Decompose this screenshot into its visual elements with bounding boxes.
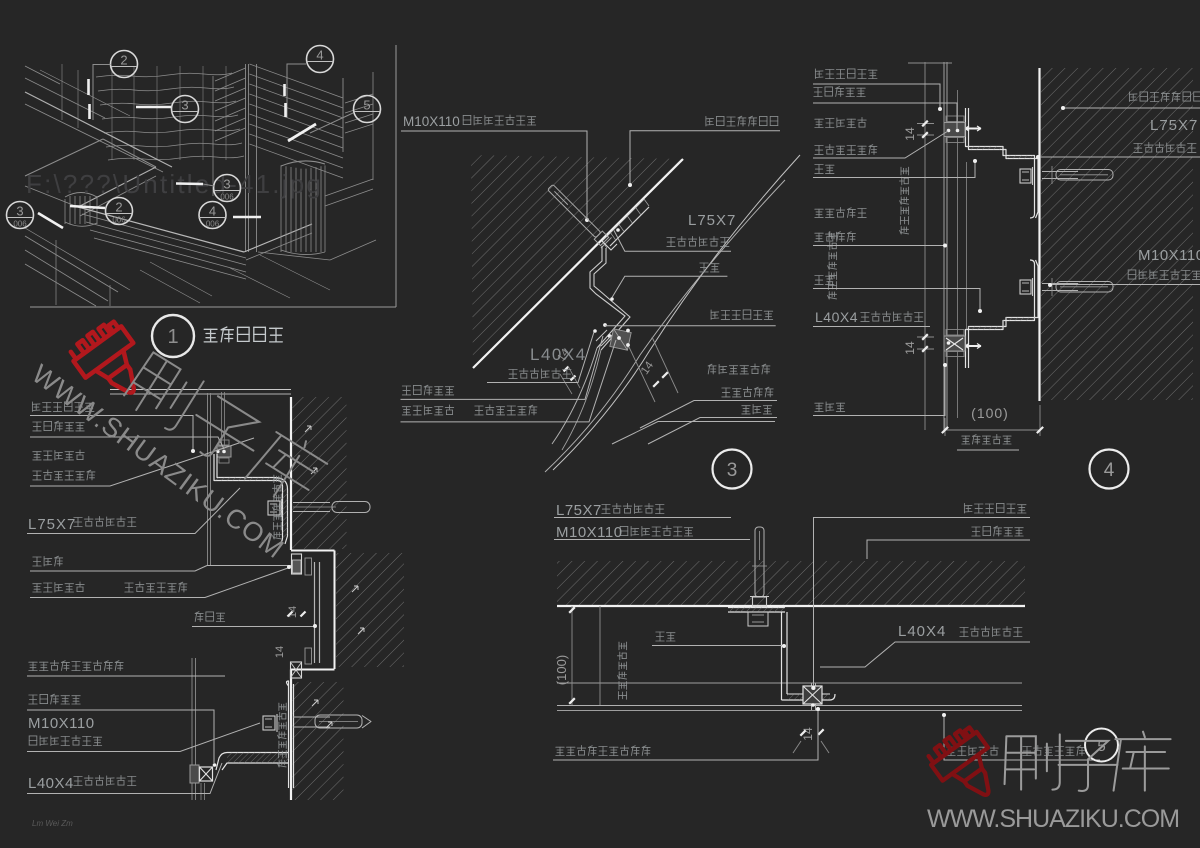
svg-text:006: 006 (13, 220, 27, 229)
svg-text:WWW.SHUAZIKU.COM: WWW.SHUAZIKU.COM (927, 805, 1179, 833)
svg-text:F:\???\Untitled-41.jpg: F:\???\Untitled-41.jpg (26, 169, 323, 199)
svg-text:4: 4 (316, 48, 323, 63)
svg-text:006: 006 (112, 216, 126, 225)
svg-text:L75X7: L75X7 (1150, 117, 1198, 134)
svg-text:M10X110: M10X110 (556, 524, 623, 541)
svg-text:14: 14 (274, 646, 286, 658)
svg-text:L40X4: L40X4 (530, 345, 587, 364)
svg-text:1: 1 (167, 326, 178, 348)
svg-text:006: 006 (206, 220, 220, 229)
svg-text:3: 3 (223, 177, 230, 192)
svg-text:4: 4 (209, 204, 216, 219)
svg-text:3: 3 (181, 98, 188, 113)
svg-text:(100): (100) (554, 655, 569, 685)
svg-text:L75X7: L75X7 (688, 212, 736, 229)
svg-text:L40X4: L40X4 (28, 775, 74, 792)
svg-text:Lm Wei Zm: Lm Wei Zm (32, 819, 73, 828)
svg-text:2: 2 (115, 200, 122, 215)
svg-text:3: 3 (16, 204, 23, 219)
svg-text:3: 3 (727, 460, 738, 481)
svg-text:L75X7: L75X7 (28, 516, 76, 533)
svg-text:006: 006 (220, 193, 234, 202)
svg-text:M10X110: M10X110 (403, 114, 460, 129)
svg-text:L40X4: L40X4 (815, 309, 858, 325)
svg-text:14: 14 (903, 341, 917, 355)
svg-text:5: 5 (363, 98, 370, 113)
svg-text:14: 14 (903, 127, 917, 141)
svg-text:4: 4 (1104, 460, 1115, 481)
svg-text:L40X4: L40X4 (898, 623, 946, 640)
svg-text:M10X110: M10X110 (1138, 247, 1200, 264)
svg-text:(100): (100) (971, 405, 1009, 421)
svg-text:L75X7: L75X7 (556, 502, 602, 519)
svg-text:2: 2 (120, 53, 127, 68)
svg-text:M10X110: M10X110 (28, 715, 95, 732)
